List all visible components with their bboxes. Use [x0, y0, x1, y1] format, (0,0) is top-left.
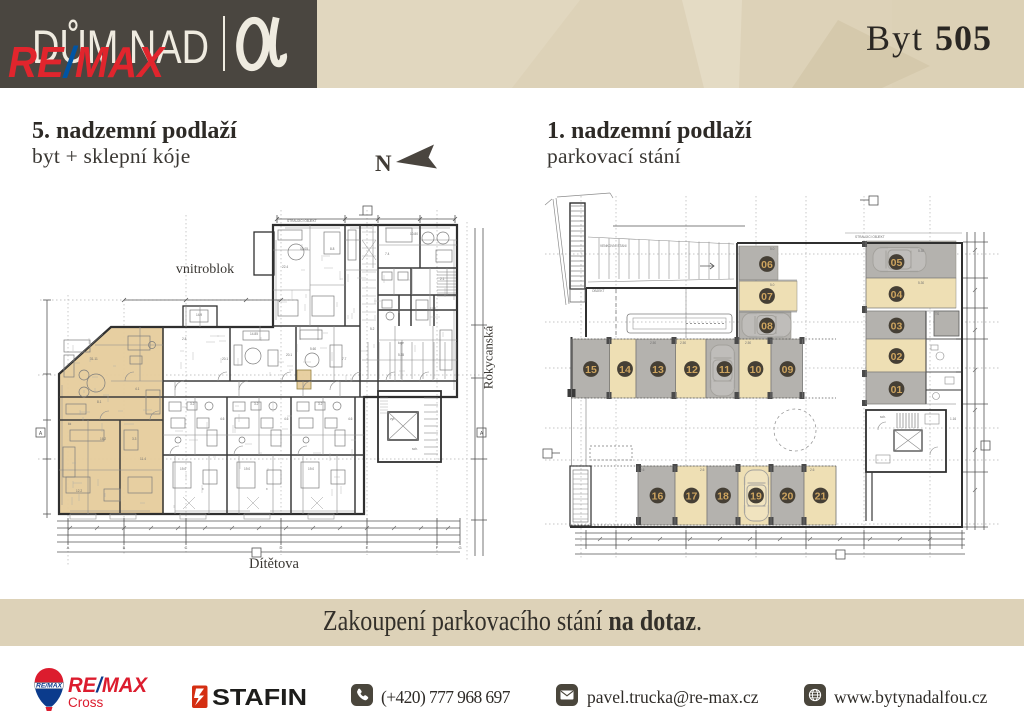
svg-text:4.6: 4.6	[284, 417, 289, 421]
svg-text:05: 05	[891, 257, 903, 269]
svg-text:3.2: 3.2	[254, 402, 259, 406]
svg-text:21: 21	[815, 490, 827, 502]
svg-text:2.50: 2.50	[680, 341, 686, 345]
svg-text:RE/MAX: RE/MAX	[36, 683, 63, 689]
svg-text:10: 10	[750, 364, 762, 376]
svg-text:x: x	[266, 487, 268, 491]
svg-text:5.30: 5.30	[918, 281, 924, 285]
svg-text:13: 13	[652, 364, 664, 376]
svg-text:8.8: 8.8	[330, 247, 335, 251]
svg-text:N: N	[375, 151, 392, 176]
svg-text:20.1: 20.1	[222, 357, 228, 361]
svg-text:14.9: 14.9	[196, 313, 202, 317]
svg-text:11: 11	[719, 364, 730, 376]
svg-text:17: 17	[686, 490, 698, 502]
svg-text:x: x	[202, 487, 204, 491]
svg-text:15: 15	[585, 364, 597, 376]
svg-text:10.05: 10.05	[300, 247, 308, 251]
svg-text:OBJEKT: OBJEKT	[592, 289, 604, 293]
svg-text:kk: kk	[68, 422, 72, 426]
svg-text:5.0: 5.0	[770, 283, 775, 287]
svg-text:VENKOVNI STANI: VENKOVNI STANI	[600, 244, 627, 248]
svg-text:A: A	[67, 545, 70, 550]
svg-text:3.2: 3.2	[190, 402, 195, 406]
svg-text:sch.: sch.	[880, 415, 886, 419]
svg-text:5.30: 5.30	[918, 249, 924, 253]
svg-text:03: 03	[891, 320, 903, 332]
svg-text:02: 02	[891, 351, 903, 363]
svg-text:22.4: 22.4	[282, 265, 288, 269]
svg-text:F: F	[436, 545, 439, 550]
svg-text:10.80: 10.80	[410, 232, 418, 236]
svg-text:08: 08	[761, 320, 773, 332]
svg-text:11.0: 11.0	[430, 307, 436, 311]
svg-text:11.4: 11.4	[140, 457, 146, 461]
svg-text:vnitroblok: vnitroblok	[176, 262, 234, 277]
svg-text:2.50: 2.50	[650, 341, 656, 345]
svg-text:2.6: 2.6	[810, 468, 815, 472]
svg-text:20: 20	[782, 490, 794, 502]
svg-text:2.50: 2.50	[745, 341, 751, 345]
svg-text:04: 04	[891, 289, 903, 301]
svg-text:8.1: 8.1	[97, 400, 102, 404]
svg-text:E: E	[366, 545, 369, 550]
svg-text:STRAUJICI OBJEKT: STRAUJICI OBJEKT	[287, 219, 317, 223]
svg-text:2.6: 2.6	[700, 468, 705, 472]
svg-text:7.7: 7.7	[342, 357, 347, 361]
svg-text:19.0: 19.0	[244, 467, 250, 471]
svg-text:A: A	[39, 431, 43, 437]
svg-text:5.0: 5.0	[770, 247, 775, 251]
svg-text:4.6: 4.6	[220, 417, 225, 421]
svg-text:7.4: 7.4	[385, 252, 390, 256]
svg-text:2.1: 2.1	[440, 277, 445, 281]
svg-text:1.16: 1.16	[950, 417, 956, 421]
svg-text:TS: TS	[935, 312, 939, 316]
svg-text:Dítětova: Dítětova	[249, 556, 299, 572]
svg-text:RE/MAX: RE/MAX	[8, 38, 166, 87]
svg-text:B: B	[123, 545, 126, 550]
svg-text:Cross: Cross	[68, 695, 104, 710]
svg-text:20.1: 20.1	[286, 353, 292, 357]
svg-text:2.8: 2.8	[182, 337, 187, 341]
svg-text:31.11: 31.11	[90, 357, 98, 361]
svg-text:C: C	[185, 545, 188, 550]
svg-text:vyt.: vyt.	[390, 417, 395, 421]
svg-text:5.60: 5.60	[310, 347, 316, 351]
svg-text:19.0: 19.0	[308, 467, 314, 471]
svg-text:19.0: 19.0	[180, 467, 186, 471]
svg-text:sch.: sch.	[412, 447, 418, 451]
svg-text:12.2: 12.2	[76, 489, 82, 493]
svg-text:D: D	[280, 545, 283, 550]
svg-text:14.85: 14.85	[250, 332, 258, 336]
svg-text:14: 14	[619, 364, 631, 376]
svg-text:06: 06	[761, 259, 773, 271]
svg-text:Rokycanská: Rokycanská	[481, 326, 496, 390]
svg-text:5.2: 5.2	[370, 327, 375, 331]
svg-text:G: G	[458, 545, 461, 550]
svg-text:07: 07	[761, 291, 773, 303]
svg-text:3.2: 3.2	[318, 402, 323, 406]
svg-text:RE/MAX: RE/MAX	[68, 673, 149, 697]
svg-text:19: 19	[750, 490, 762, 502]
svg-text:4.1: 4.1	[135, 387, 140, 391]
svg-text:09: 09	[782, 364, 794, 376]
svg-text:16.2: 16.2	[100, 437, 106, 441]
svg-text:4.6: 4.6	[348, 417, 353, 421]
svg-text:18: 18	[717, 490, 729, 502]
svg-text:5.35: 5.35	[398, 353, 404, 357]
svg-text:2.6: 2.6	[640, 468, 645, 472]
svg-text:STRAUJICI OBJEKT: STRAUJICI OBJEKT	[855, 235, 885, 239]
svg-text:16: 16	[652, 490, 664, 502]
svg-text:STAFIN: STAFIN	[212, 684, 307, 710]
svg-text:01: 01	[891, 384, 903, 396]
svg-text:koje: koje	[398, 341, 404, 345]
svg-text:12: 12	[686, 364, 698, 376]
svg-text:3.3: 3.3	[132, 437, 137, 441]
